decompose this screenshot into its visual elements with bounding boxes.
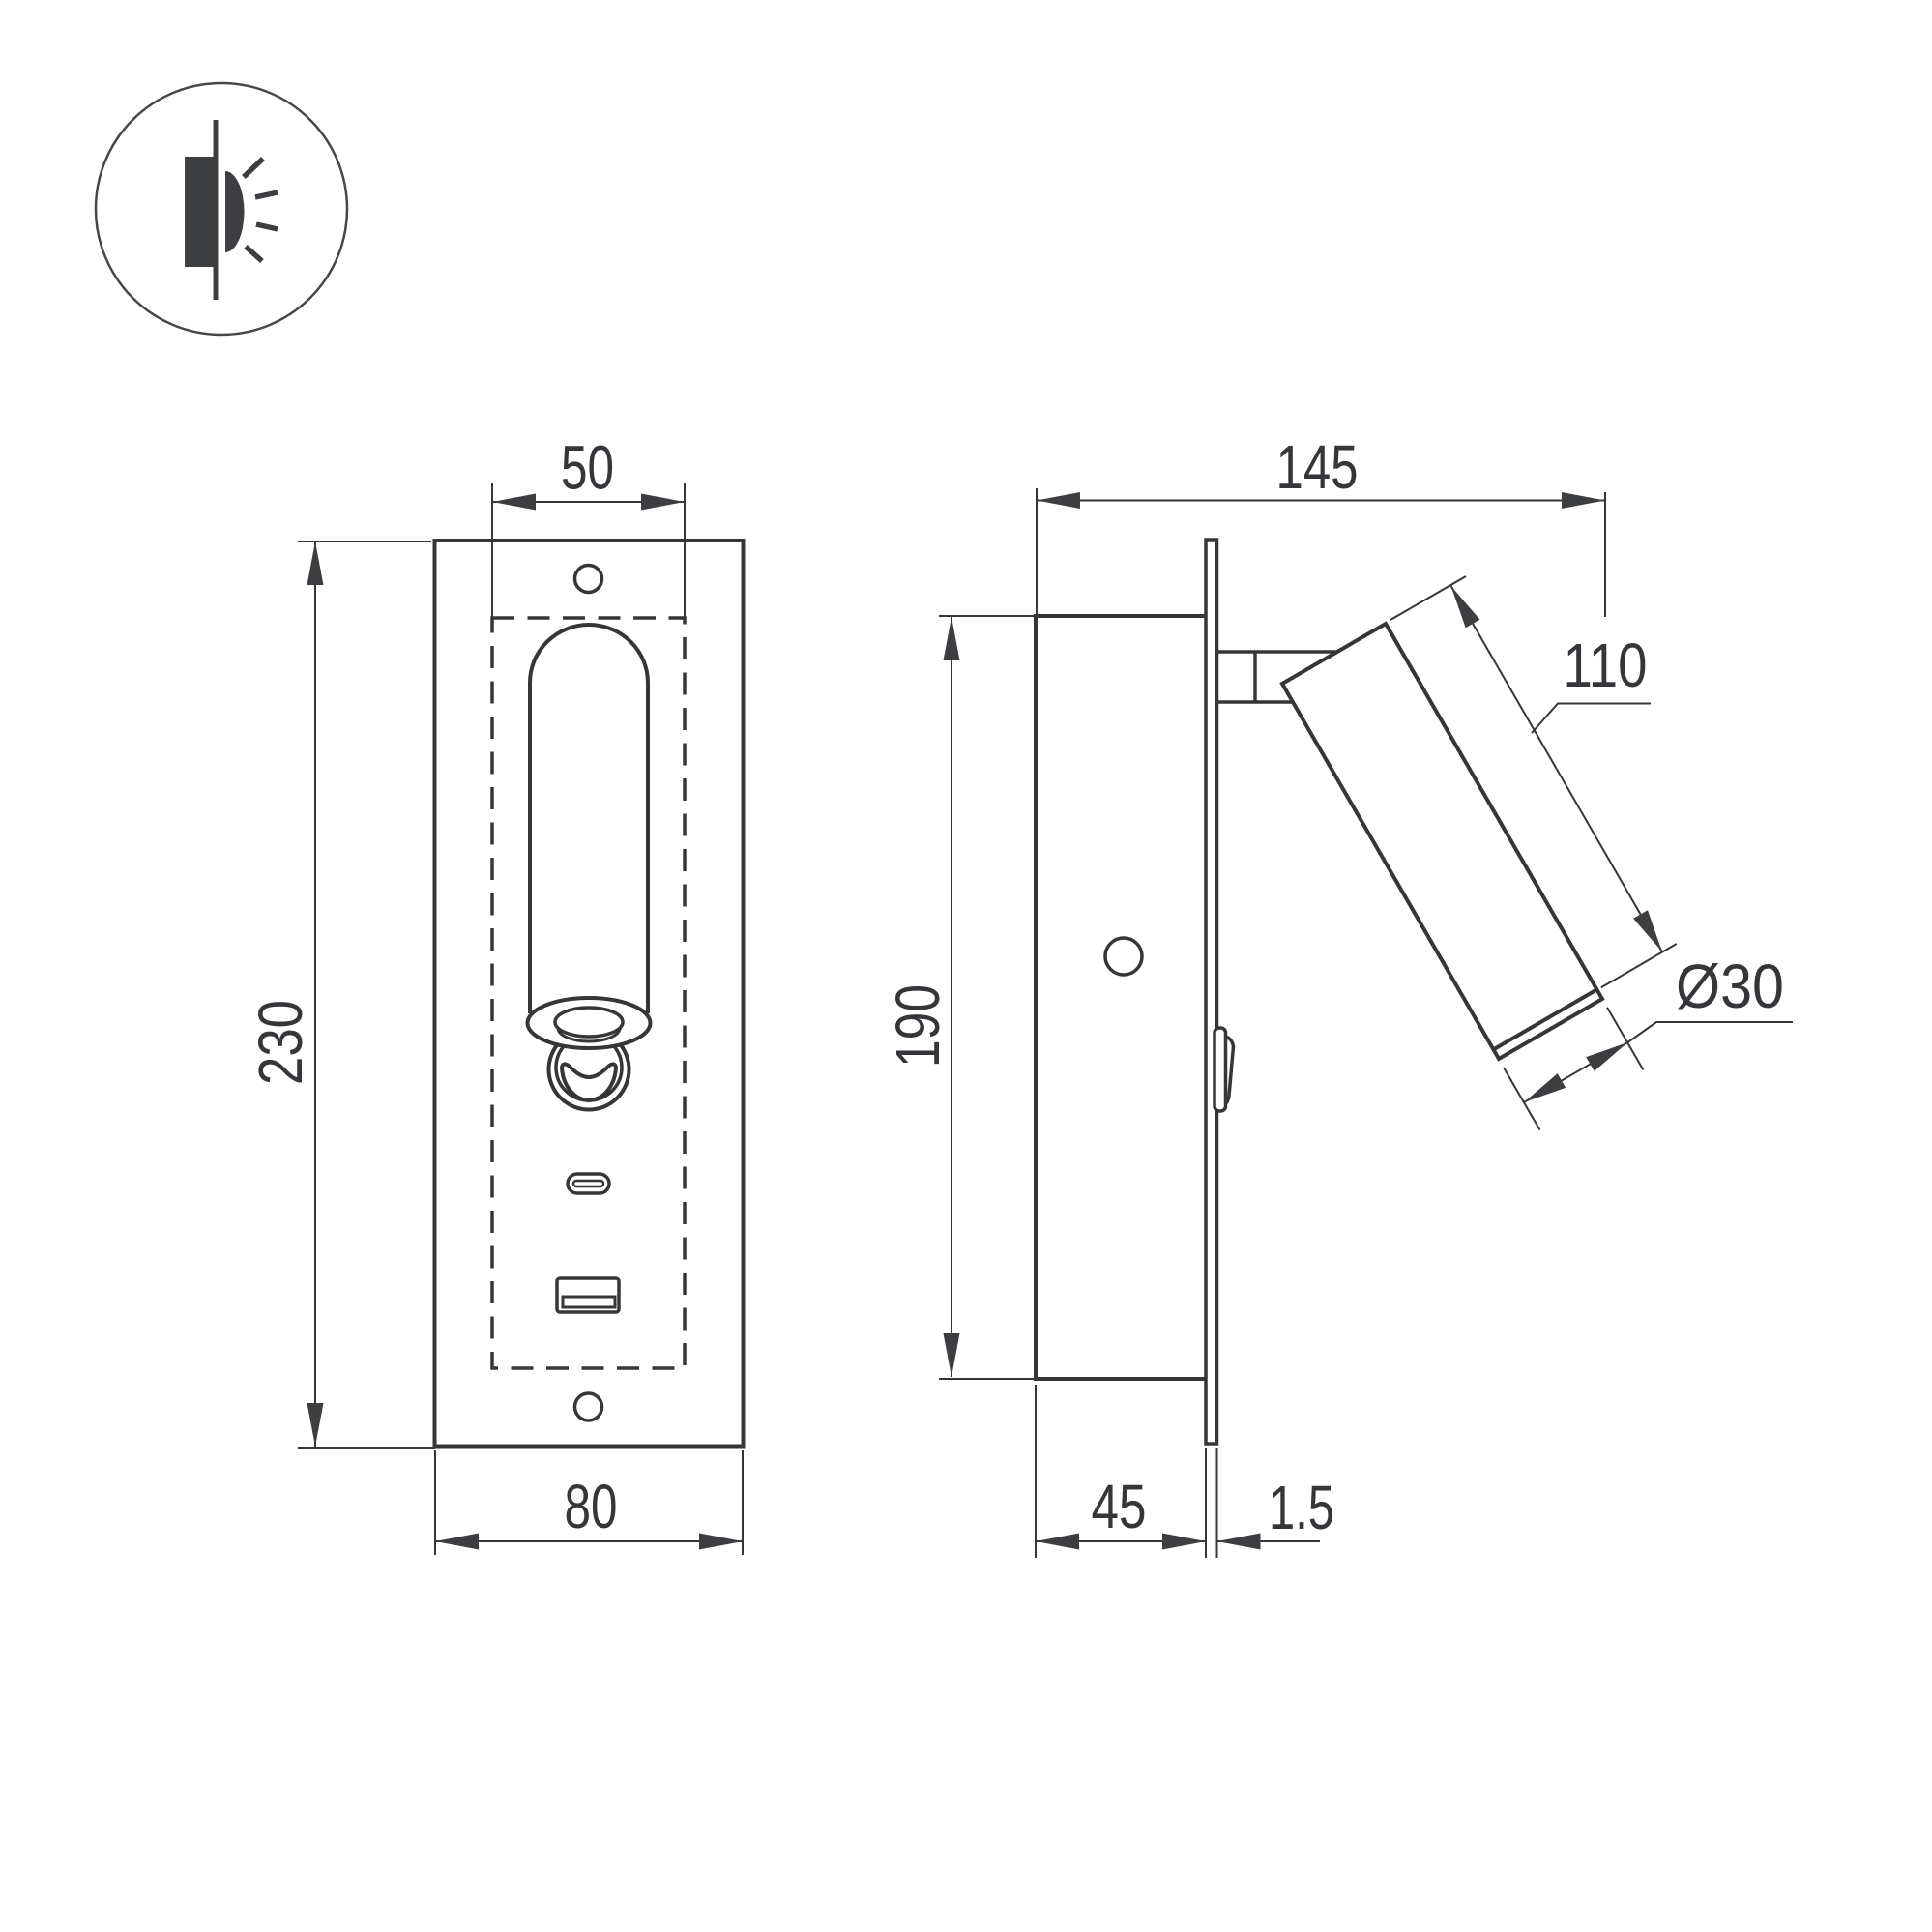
svg-text:145: 145	[1276, 432, 1359, 502]
svg-text:1.5: 1.5	[1269, 1473, 1334, 1542]
svg-text:45: 45	[1092, 1472, 1147, 1541]
svg-text:230: 230	[246, 1000, 315, 1085]
svg-text:Ø30: Ø30	[1676, 951, 1784, 1021]
svg-text:190: 190	[883, 984, 952, 1068]
svg-text:110: 110	[1564, 630, 1648, 700]
svg-text:80: 80	[565, 1472, 618, 1541]
svg-text:50: 50	[561, 433, 614, 503]
